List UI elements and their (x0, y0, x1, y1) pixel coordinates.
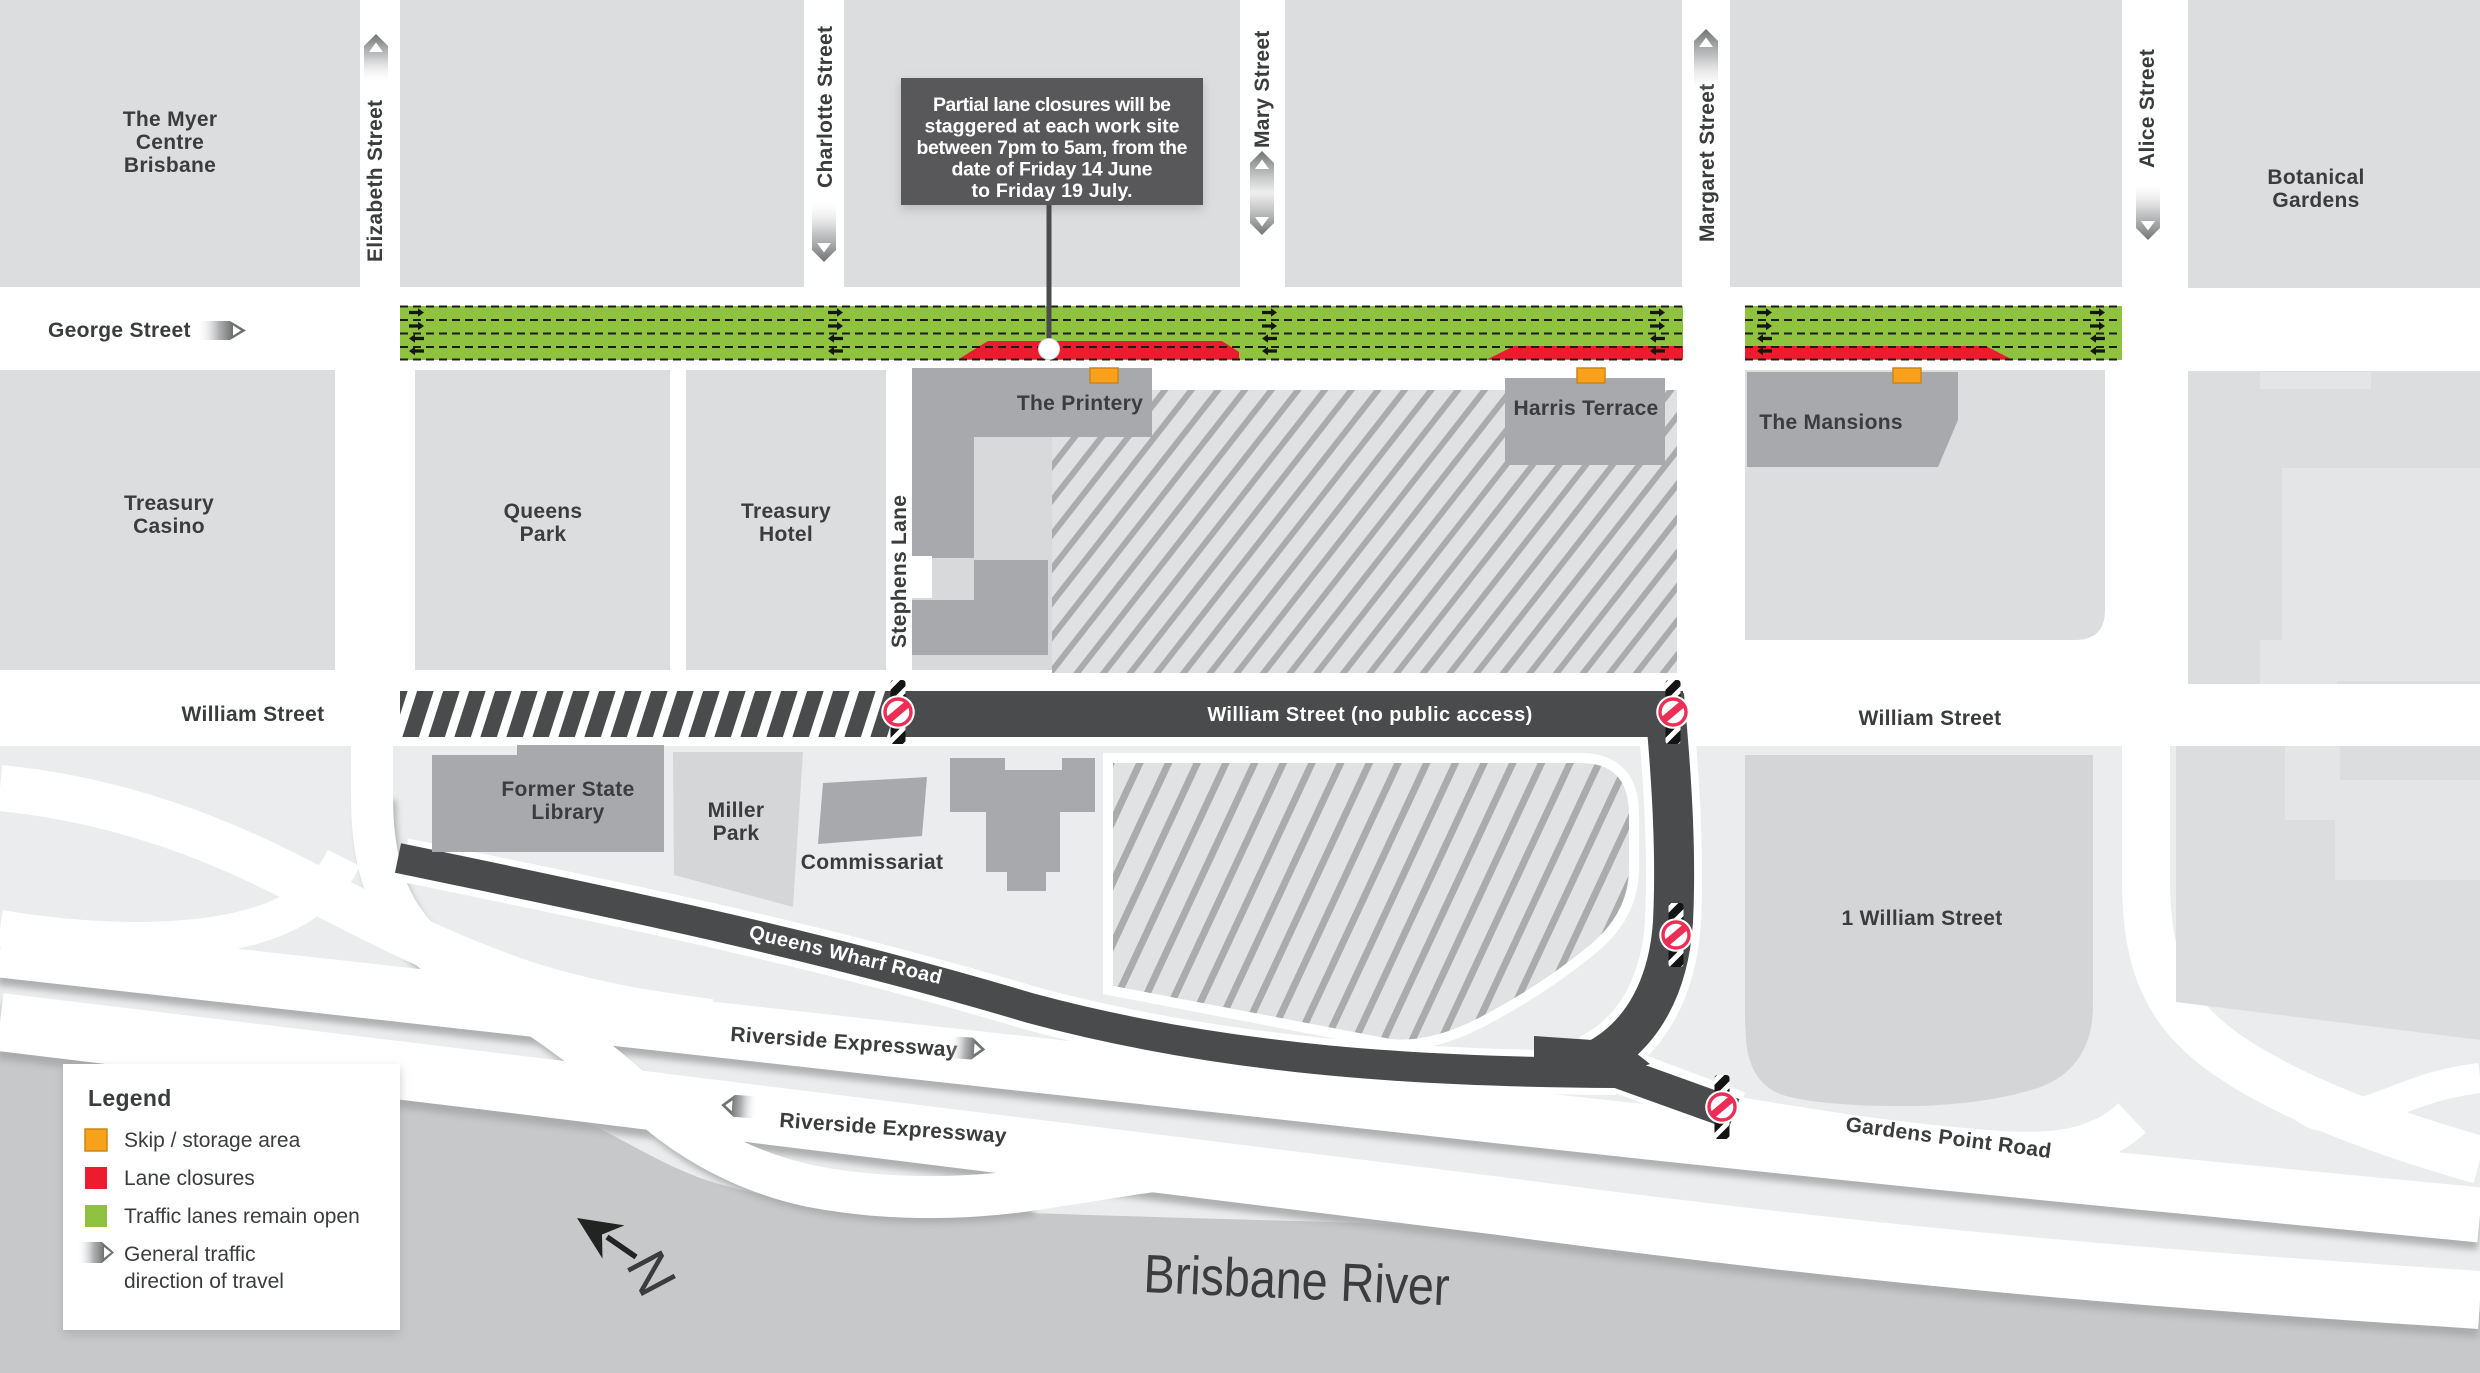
svg-text:staggered at each work site: staggered at each work site (925, 116, 1180, 138)
svg-text:Skip / storage area: Skip / storage area (124, 1129, 301, 1152)
svg-text:Elizabeth Street: Elizabeth Street (364, 100, 387, 262)
svg-text:Treasury: Treasury (741, 500, 831, 523)
svg-text:William Street: William Street (182, 703, 325, 726)
svg-text:Library: Library (531, 801, 604, 824)
svg-text:Brisbane: Brisbane (124, 154, 216, 177)
svg-text:Alice Street: Alice Street (2136, 49, 2159, 168)
svg-text:The Mansions: The Mansions (1759, 411, 1903, 434)
svg-text:Park: Park (713, 822, 760, 845)
svg-text:The Printery: The Printery (1017, 392, 1143, 415)
svg-text:Treasury: Treasury (124, 492, 214, 515)
svg-text:Traffic lanes remain open: Traffic lanes remain open (124, 1205, 360, 1228)
svg-text:direction of travel: direction of travel (124, 1270, 284, 1293)
svg-text:Partial lane closures will be: Partial lane closures will be (933, 94, 1171, 116)
svg-text:Botanical: Botanical (2267, 166, 2364, 189)
svg-text:George Street: George Street (48, 319, 191, 342)
svg-text:Miller: Miller (708, 799, 765, 822)
svg-text:Former State: Former State (501, 778, 634, 801)
svg-text:The Myer: The Myer (123, 108, 218, 131)
svg-text:Margaret Street: Margaret Street (1696, 83, 1719, 242)
svg-text:General traffic: General traffic (124, 1243, 256, 1266)
svg-text:Charlotte Street: Charlotte Street (814, 26, 837, 188)
svg-text:date of Friday 14 June: date of Friday 14 June (952, 159, 1153, 181)
svg-text:Park: Park (520, 523, 567, 546)
svg-text:between 7pm to 5am, from the: between 7pm to 5am, from the (917, 137, 1188, 159)
svg-text:Hotel: Hotel (759, 523, 813, 546)
svg-text:William Street: William Street (1859, 707, 2002, 730)
svg-text:to Friday 19 July.: to Friday 19 July. (972, 180, 1133, 202)
svg-text:Stephens Lane: Stephens Lane (888, 495, 911, 648)
svg-text:Casino: Casino (133, 515, 205, 538)
svg-text:Mary Street: Mary Street (1251, 30, 1274, 148)
svg-text:Harris Terrace: Harris Terrace (1513, 397, 1658, 420)
svg-text:Commissariat: Commissariat (801, 851, 944, 874)
svg-text:1 William Street: 1 William Street (1842, 907, 2003, 930)
svg-text:Queens: Queens (504, 500, 583, 523)
svg-text:Legend: Legend (88, 1085, 172, 1111)
svg-text:Lane closures: Lane closures (124, 1167, 255, 1190)
svg-text:Gardens: Gardens (2272, 189, 2359, 212)
svg-text:William Street (no public acce: William Street (no public access) (1207, 704, 1532, 726)
svg-text:Centre: Centre (136, 131, 204, 154)
